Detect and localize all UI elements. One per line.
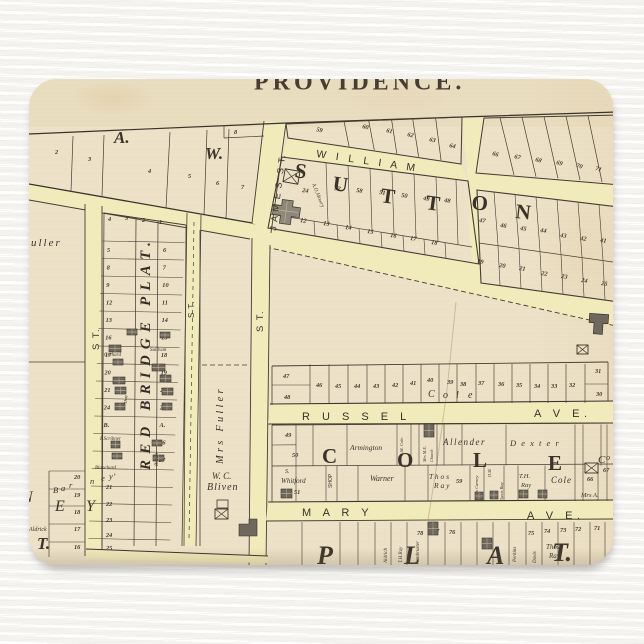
svg-text:Davis Ray: Davis Ray (499, 482, 504, 502)
svg-text:49: 49 (284, 432, 292, 439)
svg-text:S.: S. (285, 469, 290, 475)
svg-text:O: O (470, 190, 489, 216)
svg-text:24: 24 (103, 405, 110, 412)
svg-text:T.H.: T.H. (519, 473, 530, 480)
svg-text:e: e (468, 390, 473, 401)
svg-text:21: 21 (518, 265, 526, 273)
svg-text:33: 33 (550, 383, 557, 390)
svg-text:15: 15 (367, 228, 374, 236)
svg-text:Church: Church (429, 450, 434, 462)
svg-text:38: 38 (459, 381, 467, 388)
svg-text:Thay: Thay (123, 395, 128, 404)
svg-text:12: 12 (300, 217, 307, 225)
svg-text:39: 39 (446, 379, 454, 386)
svg-text:31: 31 (594, 368, 601, 375)
svg-text:20: 20 (104, 370, 112, 377)
svg-text:72: 72 (575, 526, 581, 533)
svg-text:Allender: Allender (442, 437, 486, 447)
svg-text:22: 22 (540, 270, 548, 278)
svg-text:E: E (54, 498, 65, 515)
svg-text:14: 14 (345, 224, 352, 232)
svg-text:47: 47 (282, 373, 290, 380)
svg-text:42: 42 (579, 235, 587, 243)
svg-text:e: e (101, 473, 105, 483)
svg-text:30: 30 (595, 391, 603, 398)
svg-text:Gerhard: Gerhard (104, 353, 121, 358)
svg-text:5: 5 (107, 247, 110, 254)
svg-text:y’: y’ (108, 471, 116, 481)
svg-text:21: 21 (105, 484, 112, 491)
svg-text:Ray: Ray (520, 482, 531, 489)
svg-text:C: C (322, 444, 337, 468)
svg-text:uller: uller (31, 237, 62, 249)
svg-text:13: 13 (323, 220, 330, 228)
svg-text:R U S S E L: R U S S E L (302, 411, 411, 423)
svg-text:18: 18 (74, 509, 81, 516)
svg-text:L: L (473, 448, 487, 472)
svg-text:3: 3 (87, 156, 91, 163)
svg-text:34: 34 (533, 383, 540, 390)
svg-text:E: E (548, 451, 562, 475)
svg-text:78: 78 (417, 530, 424, 537)
svg-text:14: 14 (162, 317, 168, 324)
svg-text:76: 76 (449, 529, 456, 536)
svg-text:Brown: Brown (155, 452, 160, 466)
svg-text:Aldrick: Aldrick (28, 527, 47, 533)
svg-text:D e x t e r: D e x t e r (509, 438, 560, 448)
svg-text:59: 59 (456, 478, 463, 485)
svg-text:C: C (428, 389, 435, 400)
svg-text:71: 71 (594, 525, 600, 532)
svg-text:45: 45 (519, 225, 527, 233)
svg-text:Bliven: Bliven (207, 482, 239, 493)
svg-text:67: 67 (603, 467, 610, 474)
svg-text:24: 24 (105, 532, 112, 539)
svg-text:S T.: S T. (187, 300, 196, 318)
svg-text:74: 74 (544, 528, 550, 535)
svg-text:37: 37 (477, 380, 485, 387)
svg-text:T h o s: T h o s (429, 472, 449, 481)
svg-text:12: 12 (106, 300, 112, 307)
svg-text:22: 22 (105, 501, 112, 508)
svg-text:Mrs Fuller: Mrs Fuller (215, 386, 226, 465)
svg-text:2: 2 (141, 217, 145, 224)
svg-text:46: 46 (315, 382, 323, 389)
svg-text:11: 11 (162, 300, 168, 307)
svg-text:S T.: S T. (255, 310, 266, 332)
svg-text:44: 44 (353, 383, 360, 390)
svg-text:Whitford: Whitford (281, 477, 306, 485)
svg-text:24: 24 (580, 277, 588, 285)
svg-text:B: B (53, 485, 58, 495)
svg-text:B.: B. (103, 422, 110, 429)
svg-text:Armington: Armington (349, 443, 382, 452)
svg-text:A.: A. (159, 422, 166, 429)
svg-text:SHOP: SHOP (328, 473, 334, 488)
svg-text:l: l (456, 390, 459, 401)
svg-text:n: n (90, 476, 94, 486)
svg-text:W. C.: W. C. (212, 471, 231, 481)
svg-text:4: 4 (107, 216, 111, 223)
svg-text:50: 50 (292, 452, 299, 459)
svg-text:13: 13 (106, 317, 112, 324)
svg-text:35: 35 (515, 382, 522, 389)
svg-text:N: N (21, 489, 34, 506)
svg-text:2: 2 (54, 149, 58, 156)
svg-text:D.M.: D.M. (487, 468, 492, 478)
svg-text:A V E.: A V E. (527, 510, 585, 522)
svg-text:4: 4 (147, 168, 151, 175)
svg-text:R a y: R a y (433, 481, 450, 490)
svg-text:21: 21 (103, 387, 110, 394)
svg-text:20: 20 (73, 474, 81, 481)
svg-text:43: 43 (372, 383, 379, 390)
svg-text:a: a (61, 483, 65, 493)
svg-text:48: 48 (283, 394, 291, 401)
svg-text:Cole: Cole (551, 475, 572, 485)
svg-text:19: 19 (74, 492, 81, 499)
svg-text:75: 75 (528, 530, 534, 537)
svg-text:Warner: Warner (370, 474, 395, 483)
svg-text:M A R Y: M A R Y (302, 507, 373, 519)
svg-text:44: 44 (539, 227, 547, 235)
svg-text:A.: A. (113, 128, 130, 147)
svg-text:17: 17 (74, 526, 81, 533)
svg-text:o: o (606, 453, 610, 462)
svg-text:Mrs M.E.: Mrs M.E. (422, 446, 427, 463)
svg-text:A V E.: A V E. (534, 408, 592, 420)
svg-text:25: 25 (600, 280, 608, 288)
svg-text:36: 36 (497, 381, 505, 388)
svg-text:10: 10 (162, 282, 169, 289)
svg-text:43: 43 (559, 232, 567, 240)
svg-text:Mrs A.: Mrs A. (580, 492, 599, 499)
svg-text:32: 32 (568, 382, 575, 389)
svg-text:40: 40 (426, 377, 434, 384)
svg-text:45: 45 (334, 383, 341, 390)
svg-text:PROVIDENCE.: PROVIDENCE. (254, 70, 465, 96)
svg-text:24: 24 (301, 187, 309, 195)
svg-text:23: 23 (105, 517, 112, 524)
svg-text:23: 23 (560, 273, 568, 281)
svg-text:A.M. Cole: A.M. Cole (399, 438, 404, 457)
svg-text:3: 3 (124, 215, 128, 222)
svg-text:S T.: S T. (91, 328, 102, 350)
svg-text:42: 42 (391, 382, 398, 389)
svg-text:73: 73 (560, 527, 566, 534)
svg-text:o: o (443, 390, 448, 401)
svg-text:41: 41 (599, 237, 607, 245)
svg-text:RED BRIDGE PLAT.: RED BRIDGE PLAT. (138, 236, 154, 471)
svg-text:1: 1 (159, 219, 162, 226)
svg-text:51: 51 (294, 489, 300, 496)
svg-text:5: 5 (188, 173, 191, 180)
svg-text:66: 66 (587, 476, 594, 483)
svg-text:41: 41 (409, 380, 416, 387)
svg-text:W.: W. (205, 144, 223, 163)
svg-text:F.Scribner: F.Scribner (99, 437, 121, 442)
svg-text:18: 18 (161, 352, 168, 359)
svg-text:C: C (598, 454, 606, 466)
svg-text:16: 16 (105, 335, 112, 342)
